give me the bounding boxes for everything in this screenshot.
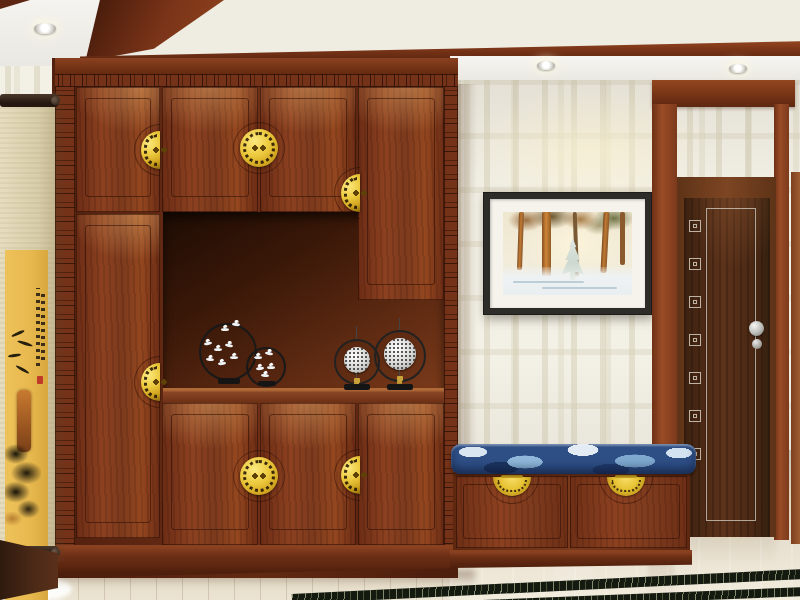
winter-forest-art bbox=[503, 212, 632, 295]
crane-figure bbox=[267, 366, 275, 369]
ornament-stand bbox=[258, 381, 276, 386]
cabinet-top-rail bbox=[55, 58, 458, 75]
bamboo-leaf bbox=[15, 364, 29, 374]
door-fret-square bbox=[689, 410, 701, 422]
art-path-line bbox=[542, 287, 617, 289]
medallion-pin bbox=[399, 318, 400, 330]
door-silver-inline bbox=[706, 208, 756, 521]
crane-figure bbox=[230, 356, 238, 359]
door-casing-right bbox=[774, 104, 789, 540]
ink-painting-foliage bbox=[5, 435, 41, 530]
recessed-spotlight-icon bbox=[537, 61, 555, 70]
cabinet-fret-band bbox=[55, 74, 458, 87]
cabinet-floor-shadow bbox=[55, 570, 475, 586]
recessed-spotlight-icon bbox=[34, 23, 56, 34]
bamboo-leaf bbox=[8, 353, 21, 358]
door-casing-top bbox=[652, 80, 795, 107]
door-fret-square bbox=[689, 296, 701, 308]
scroll-roller-top bbox=[0, 94, 58, 107]
red-seal bbox=[37, 376, 43, 384]
door-fret-square bbox=[689, 334, 701, 346]
framed-picture bbox=[483, 192, 652, 315]
door-fret-square bbox=[689, 220, 701, 232]
door-fret-square bbox=[689, 258, 701, 270]
interior-door[interactable] bbox=[684, 198, 770, 537]
calligraphy-column bbox=[36, 288, 40, 366]
ornament-stand bbox=[344, 384, 370, 390]
gold-medallion-pull[interactable] bbox=[240, 129, 278, 167]
bench-cushion bbox=[451, 444, 696, 474]
art-tree-trunk bbox=[620, 212, 625, 265]
crane-figure bbox=[221, 328, 229, 331]
scroll-knob bbox=[51, 96, 60, 105]
far-right-frame-edge bbox=[791, 172, 800, 544]
hallway-scene bbox=[0, 0, 800, 600]
ornament-stand bbox=[218, 378, 240, 384]
recessed-spotlight-icon bbox=[729, 64, 747, 73]
bamboo-leaf bbox=[17, 340, 33, 348]
door-knob[interactable] bbox=[749, 321, 764, 336]
medallion-pin bbox=[356, 326, 357, 340]
silver-lace-medallion bbox=[344, 347, 370, 373]
silver-lace-medallion bbox=[384, 338, 416, 370]
calligraphy-column bbox=[41, 294, 45, 360]
niche-shelf bbox=[163, 388, 444, 403]
crane-figure bbox=[214, 348, 222, 351]
gold-medallion-pull[interactable] bbox=[240, 457, 278, 495]
cabinet-door-upper-right[interactable] bbox=[358, 87, 444, 300]
ornament-stand bbox=[387, 384, 413, 390]
hanging-scroll bbox=[0, 102, 55, 554]
bamboo-leaf bbox=[11, 329, 25, 337]
door-lock-rosette bbox=[752, 339, 762, 349]
crane-figure bbox=[254, 356, 262, 359]
cabinet-door-lower-right[interactable] bbox=[358, 403, 444, 545]
picture-mat bbox=[490, 199, 645, 308]
door-fret-square bbox=[689, 372, 701, 384]
